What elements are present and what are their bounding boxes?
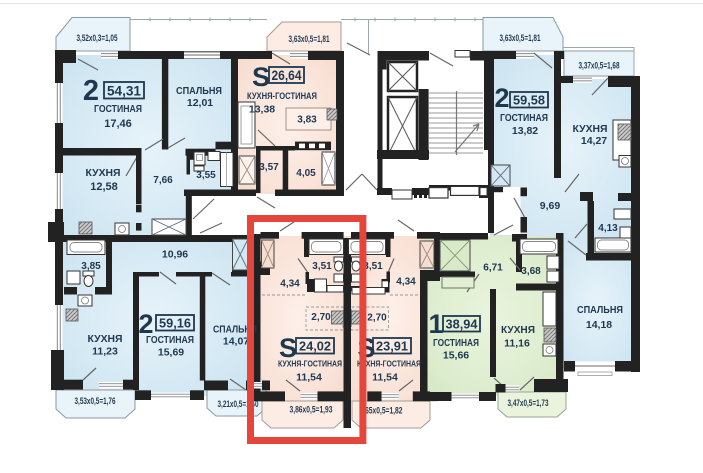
svg-text:КУХНЯ: КУХНЯ [501, 324, 535, 336]
svg-text:3,55: 3,55 [196, 170, 216, 181]
svg-text:3,53x0,5=1,76: 3,53x0,5=1,76 [75, 396, 116, 407]
svg-text:59,58: 59,58 [513, 93, 545, 108]
svg-text:ГОСТИНАЯ: ГОСТИНАЯ [500, 112, 548, 124]
svg-text:КУХНЯ-ГОСТИНАЯ: КУХНЯ-ГОСТИНАЯ [278, 359, 342, 369]
svg-text:КУХНЯ-ГОСТИНАЯ: КУХНЯ-ГОСТИНАЯ [357, 359, 421, 369]
svg-text:S: S [252, 62, 270, 92]
svg-text:3,85: 3,85 [81, 261, 101, 272]
svg-text:3,47x0,5=1,73: 3,47x0,5=1,73 [508, 398, 549, 409]
svg-text:3,83: 3,83 [297, 115, 317, 126]
svg-text:10,96: 10,96 [162, 249, 188, 261]
svg-text:ГОСТИНАЯ: ГОСТИНАЯ [94, 103, 142, 115]
svg-text:11,23: 11,23 [92, 346, 118, 358]
svg-text:9,69: 9,69 [540, 200, 561, 212]
svg-text:23,91: 23,91 [376, 339, 408, 354]
svg-text:ГОСТИНАЯ: ГОСТИНАЯ [146, 334, 194, 346]
svg-text:СПАЛЬНЯ: СПАЛЬНЯ [577, 304, 623, 316]
svg-text:1: 1 [428, 309, 443, 339]
svg-text:ГОСТИНАЯ: ГОСТИНАЯ [433, 337, 479, 349]
svg-text:КУХНЯ: КУХНЯ [86, 167, 121, 179]
svg-text:11,16: 11,16 [504, 338, 530, 350]
svg-text:11,54: 11,54 [296, 372, 322, 384]
svg-text:3,57: 3,57 [259, 162, 279, 173]
svg-text:13,82: 13,82 [512, 125, 538, 137]
svg-text:11,54: 11,54 [372, 372, 398, 384]
svg-text:3,37x0,5=1,68: 3,37x0,5=1,68 [579, 61, 620, 72]
svg-text:3,63x0,5=1,81: 3,63x0,5=1,81 [289, 34, 330, 45]
svg-text:КУХНЯ-ГОСТИНАЯ: КУХНЯ-ГОСТИНАЯ [247, 91, 317, 101]
svg-text:7,66: 7,66 [153, 175, 173, 186]
svg-text:4,34: 4,34 [396, 277, 416, 288]
svg-text:2,70: 2,70 [311, 312, 331, 323]
svg-text:17,46: 17,46 [104, 118, 132, 130]
svg-text:14,07: 14,07 [223, 336, 249, 348]
svg-text:54,31: 54,31 [107, 84, 141, 99]
svg-text:26,64: 26,64 [272, 68, 302, 83]
svg-text:38,94: 38,94 [446, 317, 479, 332]
svg-text:15,69: 15,69 [158, 347, 184, 359]
svg-text:12,01: 12,01 [187, 97, 213, 109]
svg-text:4,05: 4,05 [296, 168, 316, 179]
svg-text:14,18: 14,18 [586, 319, 612, 331]
svg-text:12,58: 12,58 [90, 181, 118, 193]
svg-text:КУХНЯ: КУХНЯ [573, 123, 608, 135]
svg-text:24,02: 24,02 [299, 339, 331, 354]
svg-text:2,70: 2,70 [367, 313, 387, 324]
svg-text:4,13: 4,13 [598, 223, 618, 234]
svg-text:3,86x0,5=1,93: 3,86x0,5=1,93 [290, 405, 333, 416]
svg-text:59,16: 59,16 [159, 316, 191, 331]
svg-text:15,66: 15,66 [443, 350, 469, 362]
svg-text:13,38: 13,38 [249, 104, 275, 116]
svg-text:СПАЛЬНЯ: СПАЛЬНЯ [176, 85, 222, 97]
svg-text:3,68: 3,68 [521, 266, 541, 277]
svg-text:3,52x0,3=1,05: 3,52x0,3=1,05 [77, 33, 118, 44]
svg-text:4,34: 4,34 [280, 279, 300, 290]
svg-text:6,71: 6,71 [483, 263, 503, 274]
svg-text:2: 2 [494, 83, 509, 113]
svg-text:14,27: 14,27 [581, 135, 607, 147]
svg-text:3,51: 3,51 [312, 261, 332, 272]
svg-text:3,63x0,5=1,81: 3,63x0,5=1,81 [500, 33, 541, 44]
svg-text:КУХНЯ: КУХНЯ [88, 333, 123, 345]
